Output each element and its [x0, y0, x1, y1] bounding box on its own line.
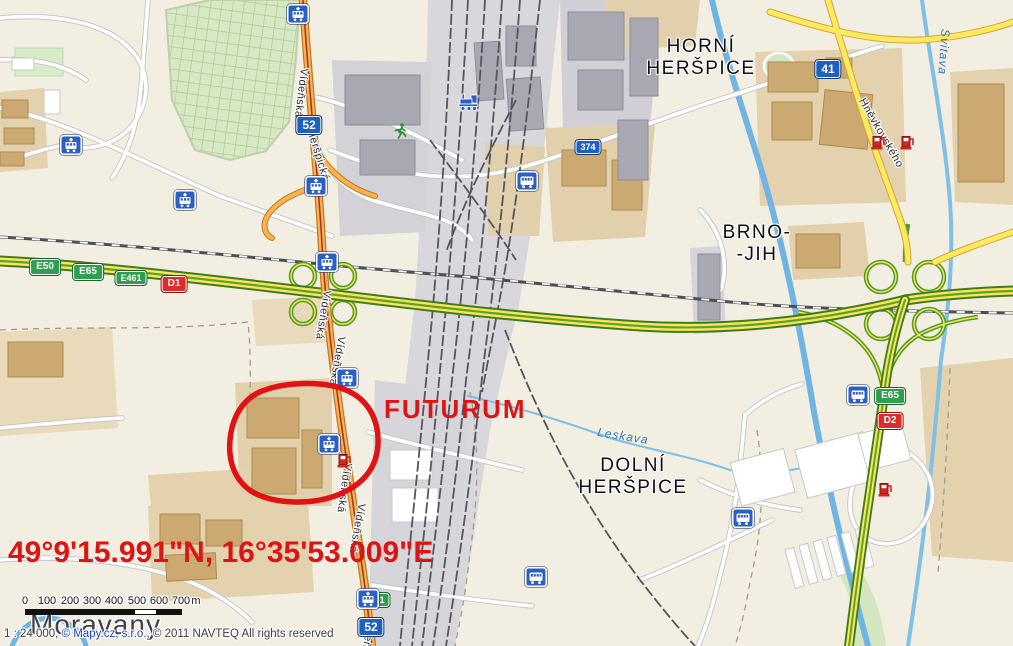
road-sign-d1: D1	[162, 276, 187, 292]
road-sign-d2: D2	[878, 413, 903, 429]
road-sign-e65-west: E65	[73, 264, 103, 280]
scale-bar-rule	[25, 609, 182, 615]
scale-tick: 100	[38, 595, 56, 607]
road-sign-52-north: 52	[296, 116, 321, 134]
scale-tick: 600	[150, 595, 168, 607]
navteq-copyright: © 2011 NAVTEQ All rights reserved	[153, 628, 334, 640]
road-sign-e461-west: E461	[115, 271, 146, 285]
scale-tick: 200	[61, 595, 79, 607]
scale-unit: m	[191, 595, 200, 607]
scale-tick: 300	[83, 595, 101, 607]
place-label-brno-jih: BRNO- -JIH	[723, 222, 792, 266]
road-sign-e50: E50	[30, 259, 60, 275]
scale-tick: 500	[128, 595, 146, 607]
mapycz-link[interactable]: © Mapy.cz, s.r.o.,	[62, 628, 150, 640]
coordinates-annotation: 49°9'15.991"N, 16°35'53.009"E	[8, 536, 433, 570]
road-sign-e65-south: E65	[875, 388, 905, 404]
scale-tick: 400	[105, 595, 123, 607]
road-sign-41: 41	[815, 60, 840, 78]
scale-tick: 0	[22, 595, 28, 607]
scale-tick: 700	[172, 595, 190, 607]
place-label-horni-herspice: HORNÍ HERŠPICE	[646, 36, 755, 80]
road-sign-52-south: 52	[358, 618, 383, 636]
road-sign-374: 374	[575, 140, 600, 154]
place-label-dolni-herspice: DOLNÍ HERŠPICE	[578, 455, 687, 499]
map-scale-text: 1 : 24 000,	[4, 628, 58, 640]
futurum-annotation: FUTURUM	[384, 394, 527, 425]
map-canvas[interactable]: HORNÍ HERŠPICE BRNO- -JIH DOLNÍ HERŠPICE…	[0, 0, 1013, 646]
attribution: 1 : 24 000, © Mapy.cz, s.r.o., © 2011 NA…	[4, 628, 334, 640]
